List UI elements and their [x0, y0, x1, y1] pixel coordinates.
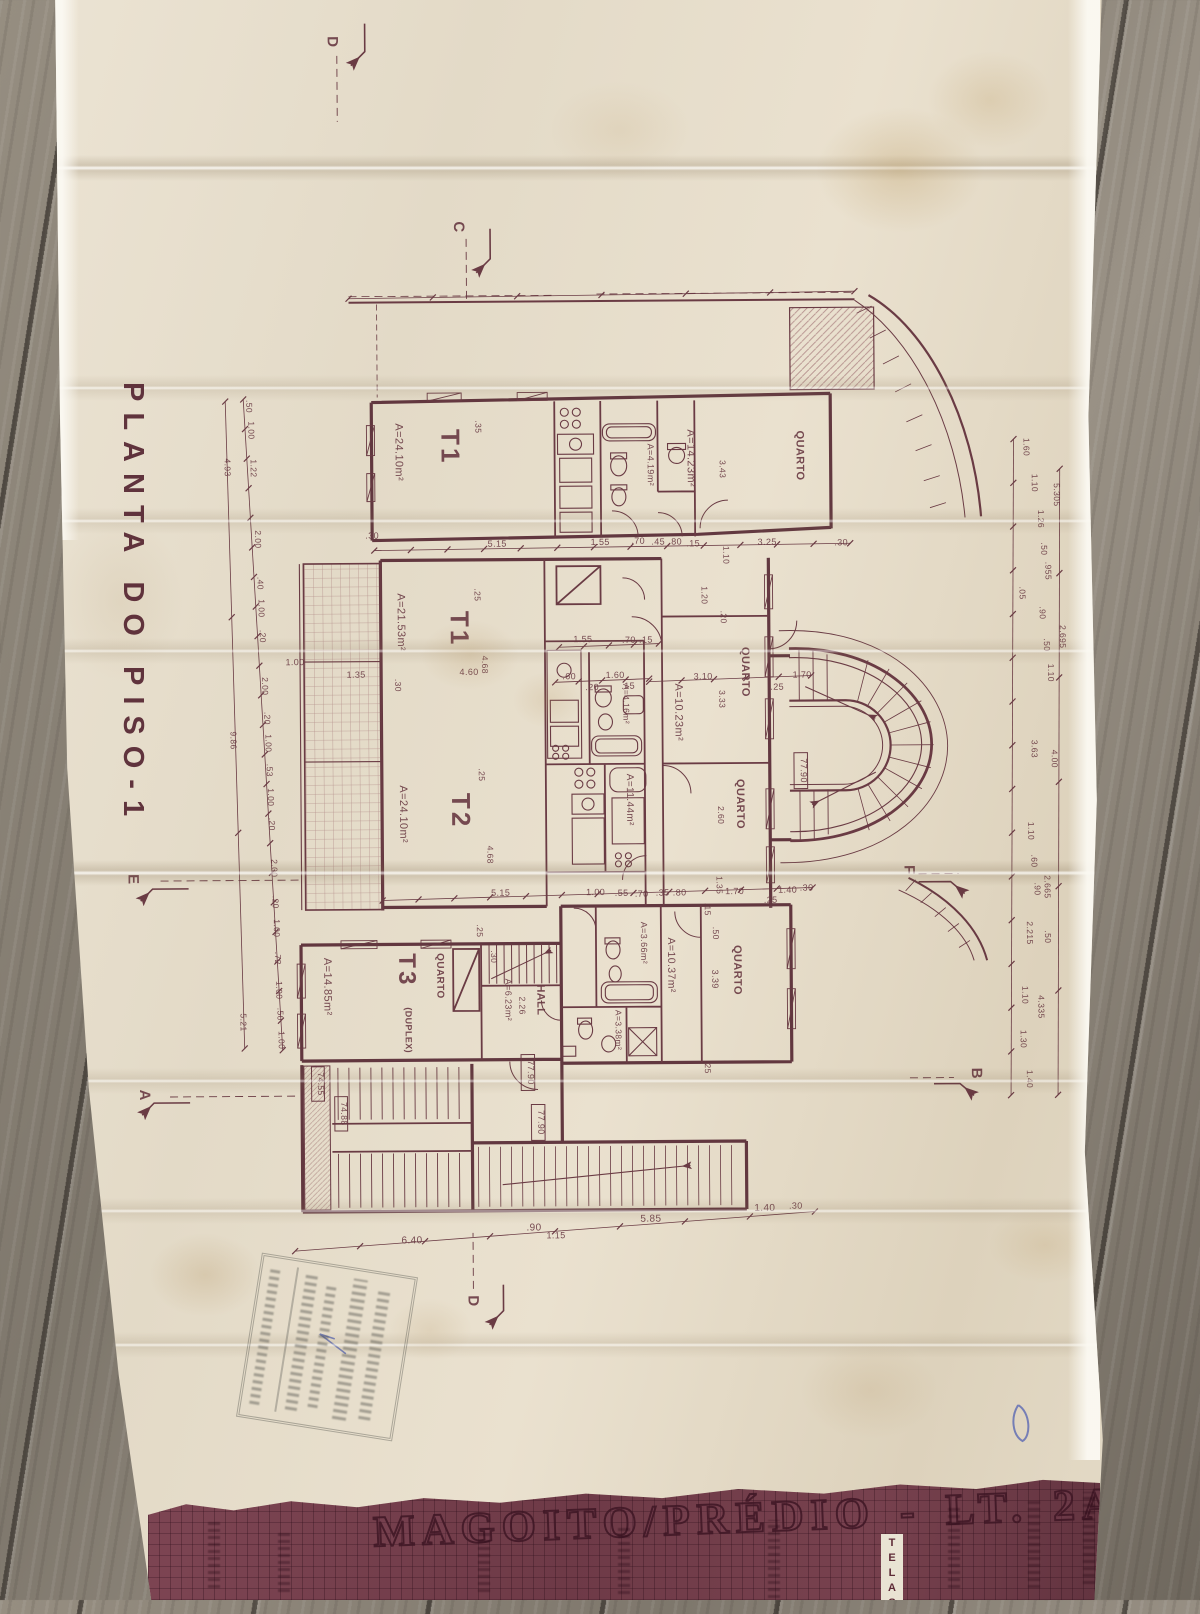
plan-title-vertical: PLANTA DO PISO-1	[116, 382, 149, 827]
label-v9: .20	[719, 611, 729, 624]
label-L17: .72	[273, 952, 283, 965]
label-R9: 1.10	[1046, 664, 1056, 682]
label-v6: 4.68	[480, 656, 490, 674]
label-R15: 2.665	[1043, 875, 1053, 898]
label-h38: .30	[789, 1201, 803, 1211]
label-v1: .35	[473, 420, 483, 433]
label-q_m1_area: A=10.23m²	[672, 683, 684, 741]
label-L9: .20	[262, 712, 272, 725]
label-v2: 3.43	[718, 460, 728, 478]
label-sA: A	[136, 1090, 153, 1101]
label-R7: .90	[1038, 606, 1048, 619]
label-R16: 2.215	[1025, 921, 1035, 944]
label-v15: .30	[489, 950, 499, 963]
terrace-hatch	[299, 564, 382, 911]
label-h30: 1.40	[778, 885, 797, 895]
label-el4: 74.55	[316, 1072, 326, 1095]
exterior-stairs	[304, 1065, 460, 1210]
label-v4: .25	[473, 588, 483, 601]
label-q_b_dim: 3.39	[710, 970, 720, 989]
label-h15: .20	[585, 682, 599, 692]
label-sE: E	[125, 874, 142, 885]
label-el1: 77.90	[799, 758, 809, 783]
label-h19: .25	[770, 682, 784, 692]
label-v12: .50	[711, 927, 721, 940]
label-h1: .30	[365, 531, 379, 541]
label-h37: 1.40	[754, 1203, 775, 1214]
label-R18: 1.10	[1020, 986, 1030, 1004]
label-h8: 3.25	[758, 537, 777, 547]
label-R20: 1.30	[1019, 1030, 1029, 1048]
label-t1b: T1	[445, 611, 475, 648]
blueprint-paper: T1A=24.10m²QUARTOA=14.23m²A=4.19m²T1A=21…	[0, 0, 1200, 1600]
label-L8: 2.00	[260, 677, 270, 695]
label-sD2: D	[464, 1295, 481, 1306]
label-t3_sub: (DUPLEX)	[403, 1007, 413, 1053]
label-h10: 1.55	[573, 634, 592, 644]
label-h20: 4.60	[460, 667, 479, 677]
label-h22: 1.00	[285, 657, 304, 667]
label-v10: 2.60	[716, 806, 726, 824]
label-v14: .25	[475, 924, 485, 937]
label-h24: 1.00	[586, 887, 605, 897]
door-arcs	[506, 500, 800, 1090]
label-v11: .15	[703, 903, 713, 916]
label-R6: .05	[1018, 586, 1028, 599]
label-c_area: A=10.37m²	[665, 937, 677, 992]
label-R10: 3.63	[1030, 740, 1040, 758]
label-v3: 1.10	[721, 546, 731, 564]
label-RO1: 5.305	[1052, 483, 1062, 506]
label-R12: 1.10	[1026, 822, 1036, 840]
cover-column-text	[618, 1524, 630, 1594]
section-arrows	[135, 19, 976, 1327]
label-v5: .30	[393, 679, 403, 692]
label-h7: .15	[686, 538, 700, 548]
label-R3: 1.26	[1036, 510, 1046, 528]
label-q_top: QUARTO	[793, 431, 805, 481]
label-q_top_area: A=14.23m²	[684, 429, 696, 487]
cover-column-text	[278, 1532, 290, 1592]
label-R4: .50	[1039, 542, 1049, 555]
label-LO2: 9.86	[229, 731, 239, 749]
label-h27: .35	[656, 888, 670, 898]
label-h26: .70	[635, 889, 649, 899]
walkway-stairs	[478, 1145, 731, 1207]
cover-column-text	[948, 1506, 960, 1588]
label-h14: 1.60	[606, 670, 625, 680]
label-t1a_area: A=24.10m²	[392, 423, 404, 481]
label-L14: 2.00	[269, 859, 279, 877]
cover-column-text	[478, 1528, 490, 1592]
label-h9: .30	[834, 537, 848, 547]
label-t1b_area: A=21.53m²	[395, 593, 407, 651]
label-L18: 1.00	[274, 981, 284, 999]
telas-tag: TELAS	[881, 1534, 903, 1614]
label-v17: 4.68	[485, 846, 495, 864]
label-h6: .80	[668, 536, 682, 546]
walls-interior	[327, 400, 772, 1152]
label-h25: .55	[615, 888, 629, 898]
label-h5: .45	[651, 537, 665, 547]
label-t3: T3	[393, 953, 420, 987]
cover-column-text	[1028, 1498, 1040, 1588]
label-L20: 1.00	[277, 1031, 287, 1049]
label-R11: 4.00	[1050, 750, 1060, 768]
label-LO3: 5.21	[238, 1013, 248, 1031]
label-t2: T2	[446, 793, 476, 830]
retaining-wall-top	[348, 291, 981, 521]
photo-of-floor-plan: { "photo": { "plan_title": "PLANTA DO PI…	[0, 0, 1200, 1600]
plan-labels: T1A=24.10m²QUARTOA=14.23m²A=4.19m²T1A=21…	[119, 31, 1073, 1309]
label-L3: 1.22	[249, 459, 259, 477]
label-h33: 6.40	[401, 1235, 422, 1246]
label-h21: 1.35	[347, 670, 366, 680]
label-h36: 5.85	[640, 1214, 661, 1225]
label-hall_dim: 2.26	[517, 997, 527, 1015]
label-L10: 1.00	[264, 734, 274, 752]
label-L2: 1.00	[246, 421, 256, 439]
label-q_t3: QUARTO	[434, 953, 445, 999]
label-h16: .15	[621, 681, 635, 691]
label-L5: .40	[255, 577, 265, 590]
section-lines	[155, 52, 962, 1292]
label-b2_area: A=3.38m²	[613, 1010, 623, 1050]
label-L6: 1.00	[257, 599, 267, 617]
label-h11: .70	[622, 635, 636, 645]
label-RO2: 2.695	[1058, 625, 1068, 648]
label-h31: .30	[800, 883, 814, 893]
cover-column-text	[768, 1520, 780, 1598]
floor-plan-drawing: T1A=24.10m²QUARTOA=14.23m²A=4.19m²T1A=21…	[0, 0, 1200, 1600]
label-sF: F	[900, 865, 917, 875]
label-LO1: 4.93	[223, 458, 233, 476]
label-hall: HALL	[534, 984, 546, 1015]
label-h23: 5.15	[491, 888, 510, 898]
label-q_m1: QUARTO	[739, 647, 751, 697]
label-h2: 5.15	[488, 539, 507, 549]
label-store_area: A=11.44m²	[624, 774, 635, 826]
label-bath_top_area: A=4.19m²	[646, 444, 656, 487]
label-h4: .70	[631, 536, 645, 546]
label-v7: 1.20	[700, 586, 710, 604]
label-v8: 3.33	[717, 690, 727, 708]
label-L11: .53	[265, 764, 275, 777]
label-h32: .25	[764, 895, 778, 905]
cover-column-text	[1083, 1492, 1095, 1584]
label-R14: .90	[1033, 882, 1043, 895]
label-t3_area: A=14.85m²	[321, 958, 333, 1016]
retaining-wall-right	[899, 877, 988, 961]
label-t1a: T1	[435, 429, 465, 466]
label-L15: .20	[271, 896, 281, 909]
label-h28: .80	[673, 887, 687, 897]
label-L4: 2.00	[253, 530, 263, 548]
label-R5: .955	[1043, 562, 1053, 580]
label-L7: .20	[258, 630, 268, 643]
label-h17: 3.10	[694, 671, 713, 681]
label-v18: .25	[477, 768, 487, 781]
label-h35: 1.15	[546, 1230, 565, 1240]
label-h3: 1.55	[591, 537, 610, 547]
label-L1: .50	[244, 400, 254, 413]
label-h12: .15	[639, 635, 653, 645]
label-L19: .50	[275, 1008, 285, 1021]
blue-pen-mark	[320, 1329, 1029, 1446]
label-R2: 1.10	[1030, 474, 1040, 492]
label-L12: 1.00	[266, 788, 276, 806]
label-q_b: QUARTO	[731, 945, 743, 995]
label-b1_area: A=3.66m²	[639, 922, 649, 965]
label-R19: 4.335	[1036, 995, 1046, 1018]
label-R17: .50	[1043, 930, 1053, 943]
label-R13: .60	[1029, 854, 1039, 867]
label-L13: .20	[267, 818, 277, 831]
label-el5: 74.88	[339, 1102, 349, 1125]
spiral-stair	[779, 629, 949, 862]
label-el3: 77.90	[536, 1110, 546, 1135]
label-L16: 1.00	[272, 919, 282, 937]
approval-stamp	[236, 1253, 418, 1442]
label-h13: .60	[562, 671, 576, 681]
label-q_m2: QUARTO	[734, 779, 746, 829]
label-v16: .25	[703, 1061, 713, 1074]
label-t2_area: A=24.10m²	[397, 785, 409, 843]
label-R1: 1.60	[1021, 438, 1031, 456]
label-R21: 1.40	[1025, 1070, 1035, 1088]
label-sB: B	[968, 1068, 985, 1079]
label-el2: 77.90	[526, 1060, 536, 1085]
label-sD1: D	[324, 36, 341, 47]
label-hall_area: A=6.23m²	[503, 979, 513, 1022]
cover-column-text	[208, 1518, 220, 1588]
label-v13: 1.35	[715, 876, 725, 894]
label-sC: C	[450, 221, 467, 232]
label-h18: 1.70	[793, 670, 812, 680]
label-h29: 1.70	[725, 886, 744, 896]
label-h34: .90	[526, 1222, 541, 1233]
label-R8: .50	[1042, 638, 1052, 651]
